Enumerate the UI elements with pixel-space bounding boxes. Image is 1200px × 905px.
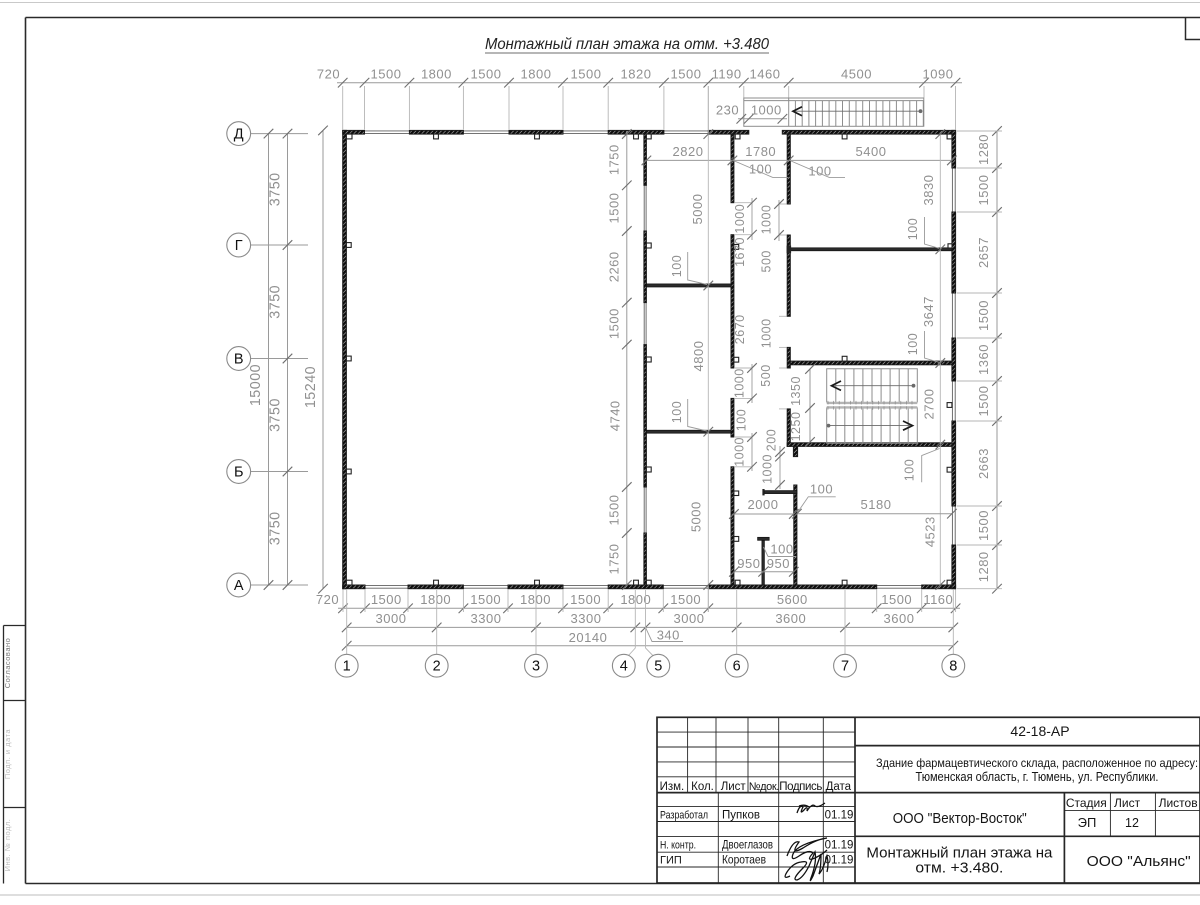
svg-text:1500: 1500 bbox=[371, 592, 402, 607]
svg-text:отм. +3.480.: отм. +3.480. bbox=[915, 860, 1003, 876]
svg-text:1750: 1750 bbox=[607, 144, 622, 175]
svg-text:1670: 1670 bbox=[733, 237, 747, 267]
svg-text:5000: 5000 bbox=[690, 194, 705, 225]
svg-text:Кол.: Кол. bbox=[691, 781, 714, 793]
svg-text:20140: 20140 bbox=[569, 630, 608, 645]
svg-text:1090: 1090 bbox=[923, 66, 954, 81]
svg-text:1460: 1460 bbox=[750, 66, 781, 81]
svg-text:3000: 3000 bbox=[376, 611, 407, 626]
svg-text:950: 950 bbox=[737, 556, 760, 571]
svg-text:200: 200 bbox=[765, 429, 779, 451]
svg-text:1800: 1800 bbox=[521, 66, 552, 81]
svg-text:1500: 1500 bbox=[670, 592, 701, 607]
svg-text:1350: 1350 bbox=[789, 376, 803, 406]
svg-text:1500: 1500 bbox=[471, 66, 502, 81]
svg-text:15000: 15000 bbox=[248, 364, 264, 406]
svg-text:4500: 4500 bbox=[841, 66, 872, 81]
svg-text:1000: 1000 bbox=[733, 368, 747, 398]
svg-text:Д: Д bbox=[234, 127, 244, 143]
svg-text:100: 100 bbox=[810, 482, 833, 497]
svg-text:5: 5 bbox=[654, 659, 662, 675]
svg-text:1780: 1780 bbox=[745, 144, 776, 159]
svg-text:2: 2 bbox=[433, 659, 441, 675]
svg-text:Листов: Листов bbox=[1159, 796, 1198, 810]
svg-text:Подпись: Подпись bbox=[779, 781, 822, 793]
svg-text:1500: 1500 bbox=[470, 592, 501, 607]
svg-text:В: В bbox=[234, 352, 244, 368]
svg-text:01.19: 01.19 bbox=[825, 810, 854, 822]
svg-text:1500: 1500 bbox=[607, 308, 622, 339]
svg-text:1500: 1500 bbox=[607, 193, 622, 224]
svg-text:8: 8 bbox=[949, 659, 957, 675]
svg-text:Двоеглазов: Двоеглазов bbox=[722, 837, 773, 851]
svg-text:Монтажный план этажа на: Монтажный план этажа на bbox=[866, 846, 1053, 862]
svg-text:4523: 4523 bbox=[923, 516, 938, 547]
svg-text:1500: 1500 bbox=[607, 495, 622, 526]
svg-text:1000: 1000 bbox=[760, 318, 774, 348]
svg-text:Лист: Лист bbox=[721, 781, 747, 793]
svg-text:Согласовано: Согласовано bbox=[3, 638, 12, 689]
svg-text:4: 4 bbox=[620, 659, 628, 675]
svg-text:1280: 1280 bbox=[976, 134, 991, 165]
svg-text:4800: 4800 bbox=[691, 341, 706, 372]
svg-text:Разработал: Разработал bbox=[660, 810, 708, 822]
svg-text:1500: 1500 bbox=[371, 66, 402, 81]
svg-text:1500: 1500 bbox=[671, 66, 702, 81]
svg-text:500: 500 bbox=[759, 364, 773, 386]
svg-text:2260: 2260 bbox=[607, 251, 622, 282]
svg-text:2000: 2000 bbox=[748, 497, 779, 512]
svg-text:340: 340 bbox=[657, 628, 680, 643]
svg-text:1500: 1500 bbox=[976, 175, 991, 206]
svg-text:3830: 3830 bbox=[921, 175, 936, 206]
svg-text:3647: 3647 bbox=[921, 296, 936, 327]
svg-text:ЭП: ЭП bbox=[1078, 815, 1097, 830]
svg-text:100: 100 bbox=[670, 255, 684, 277]
svg-text:3300: 3300 bbox=[471, 611, 502, 626]
svg-text:2670: 2670 bbox=[733, 314, 747, 344]
svg-text:100: 100 bbox=[770, 542, 793, 557]
svg-text:3000: 3000 bbox=[674, 611, 705, 626]
svg-text:1: 1 bbox=[343, 659, 351, 675]
svg-text:1360: 1360 bbox=[976, 344, 991, 375]
svg-text:1000: 1000 bbox=[733, 204, 747, 234]
svg-text:5180: 5180 bbox=[861, 497, 892, 512]
svg-text:1820: 1820 bbox=[621, 66, 652, 81]
svg-text:1800: 1800 bbox=[620, 592, 651, 607]
svg-text:ООО "Вектор-Восток": ООО "Вектор-Восток" bbox=[893, 811, 1027, 827]
svg-text:3750: 3750 bbox=[268, 398, 284, 432]
svg-text:Тюменская область, г. Тюмень,: Тюменская область, г. Тюмень, ул. Респуб… bbox=[916, 769, 1159, 784]
svg-text:1500: 1500 bbox=[881, 592, 912, 607]
svg-text:720: 720 bbox=[317, 66, 340, 81]
svg-text:1000: 1000 bbox=[733, 437, 747, 467]
svg-text:3750: 3750 bbox=[268, 172, 284, 206]
svg-text:720: 720 bbox=[316, 592, 339, 607]
svg-text:100: 100 bbox=[808, 164, 831, 179]
svg-text:1250: 1250 bbox=[789, 412, 803, 442]
svg-text:Монтажный план этажа на отм. +: Монтажный план этажа на отм. +3.480 bbox=[485, 36, 769, 53]
svg-text:Б: Б bbox=[234, 465, 244, 481]
svg-text:1800: 1800 bbox=[420, 592, 451, 607]
svg-text:Коротаев: Коротаев bbox=[722, 852, 766, 866]
svg-text:1500: 1500 bbox=[976, 386, 991, 417]
svg-text:500: 500 bbox=[760, 250, 774, 272]
svg-text:5600: 5600 bbox=[777, 592, 808, 607]
svg-text:01.19: 01.19 bbox=[825, 854, 854, 866]
svg-text:1500: 1500 bbox=[976, 300, 991, 331]
svg-text:230: 230 bbox=[716, 103, 739, 118]
svg-text:100: 100 bbox=[903, 459, 917, 481]
svg-text:5000: 5000 bbox=[689, 501, 704, 532]
svg-text:ГИП: ГИП bbox=[660, 854, 682, 866]
svg-text:100: 100 bbox=[906, 218, 920, 240]
svg-text:100: 100 bbox=[670, 401, 684, 423]
svg-text:Лист: Лист bbox=[1114, 796, 1141, 810]
svg-text:Подп. и дата: Подп. и дата bbox=[3, 729, 12, 780]
svg-text:3750: 3750 bbox=[268, 511, 284, 545]
svg-text:Дата: Дата bbox=[826, 781, 852, 793]
svg-text:4740: 4740 bbox=[608, 400, 623, 431]
svg-text:100: 100 bbox=[735, 409, 749, 431]
svg-text:1500: 1500 bbox=[976, 510, 991, 541]
svg-text:3600: 3600 bbox=[775, 611, 806, 626]
svg-text:42-18-АР: 42-18-АР bbox=[1010, 723, 1069, 739]
svg-text:1750: 1750 bbox=[607, 544, 622, 575]
svg-text:3600: 3600 bbox=[884, 611, 915, 626]
svg-text:№док.: №док. bbox=[749, 781, 780, 793]
svg-text:Здание фармацевтического склад: Здание фармацевтического склада, располо… bbox=[876, 756, 1198, 770]
svg-text:2657: 2657 bbox=[976, 237, 991, 268]
svg-text:Г: Г bbox=[235, 238, 243, 254]
svg-text:А: А bbox=[234, 578, 244, 594]
svg-text:1800: 1800 bbox=[421, 66, 452, 81]
svg-text:3: 3 bbox=[532, 659, 540, 675]
svg-text:1000: 1000 bbox=[751, 103, 782, 118]
svg-text:01.19: 01.19 bbox=[825, 839, 854, 851]
svg-text:6: 6 bbox=[733, 659, 741, 675]
svg-text:Стадия: Стадия bbox=[1066, 796, 1107, 810]
svg-text:7: 7 bbox=[841, 659, 849, 675]
svg-text:1190: 1190 bbox=[712, 66, 742, 81]
svg-text:1280: 1280 bbox=[976, 551, 991, 582]
svg-text:2663: 2663 bbox=[976, 448, 991, 479]
svg-text:Н. контр.: Н. контр. bbox=[660, 839, 696, 851]
svg-text:ООО "Альянс": ООО "Альянс" bbox=[1087, 854, 1191, 870]
svg-text:100: 100 bbox=[906, 333, 920, 355]
svg-text:3300: 3300 bbox=[571, 611, 602, 626]
svg-text:2820: 2820 bbox=[673, 144, 704, 159]
svg-text:15240: 15240 bbox=[303, 366, 319, 408]
svg-text:1800: 1800 bbox=[520, 592, 551, 607]
svg-text:1500: 1500 bbox=[571, 66, 602, 81]
svg-text:5400: 5400 bbox=[856, 144, 887, 159]
svg-text:1160: 1160 bbox=[923, 592, 953, 607]
svg-text:950: 950 bbox=[767, 556, 790, 571]
svg-text:1000: 1000 bbox=[761, 454, 775, 484]
svg-text:1000: 1000 bbox=[760, 205, 774, 235]
svg-text:Изм.: Изм. bbox=[660, 781, 685, 793]
svg-text:1500: 1500 bbox=[570, 592, 601, 607]
svg-text:Инв. № подл.: Инв. № подл. bbox=[3, 819, 12, 872]
svg-text:12: 12 bbox=[1125, 816, 1139, 830]
svg-text:3750: 3750 bbox=[268, 285, 284, 319]
svg-text:2700: 2700 bbox=[922, 389, 937, 420]
svg-text:Пупков: Пупков bbox=[722, 808, 760, 822]
